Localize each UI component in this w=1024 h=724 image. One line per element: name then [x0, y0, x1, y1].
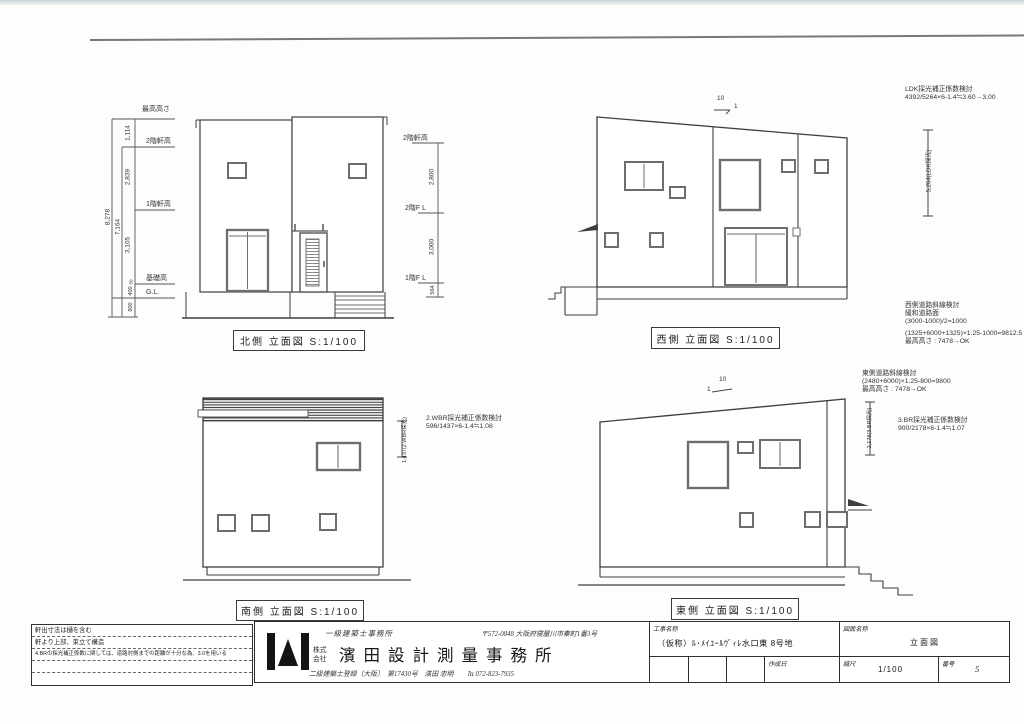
west-road-line5: 最高高さ : 7478→OK — [905, 338, 1022, 346]
north-level-max: 最高高さ — [142, 106, 170, 114]
west-canopy — [577, 224, 598, 232]
west-road-setback-note: 西側道路斜線検討 緩和道路面 (3000-1000)/2=1000 — [905, 302, 967, 327]
wbr-check-line2: 596/1437×6-1.4≒1.08 — [426, 423, 502, 431]
logo-right-bar — [301, 633, 309, 670]
west-road-line1: 西側道路斜線検討 — [905, 302, 967, 310]
west-slope-mark-line — [714, 110, 730, 114]
wbr-check-line1: 2.WBR採光補正係数検討 — [426, 415, 502, 423]
br-dimension-text: 2,178(3.BR採光) — [865, 408, 873, 449]
project-name-label: 工事名称 — [653, 624, 678, 633]
west-level-fl1: 1階F L — [405, 275, 426, 283]
east-canopy — [848, 499, 869, 506]
east-elevation-title: 東側 立面図 S:1/100 — [671, 598, 799, 620]
west-dim-564: 564 — [430, 285, 436, 294]
south-wall — [203, 398, 383, 567]
number-cell: 番号 5 — [939, 657, 1010, 682]
west-level-eave2: 2階軒高 — [403, 135, 428, 143]
scale-cell: 縮尺 1/100 — [840, 657, 939, 682]
registration-line: 二級建築士登録（大阪） 第17430号 濱田 忠明 ℡ 072-823-7935 — [309, 668, 514, 678]
north-dim-400: 400 — [128, 286, 134, 295]
project-panel: 工事名称 （仮称）ﾙ･ﾒｲﾕｰﾙｳﾞｨﾚ水口東 8号地 図面名称 立面図 作成日… — [649, 622, 1010, 682]
company-name: 濱田設計測量事務所 — [339, 642, 560, 666]
corp-prefix-2: 会社 — [313, 653, 327, 663]
ldk-daylight-check-note: LDK採光補正係数検討 4392/5264×6-1.4≒3.60→3.00 — [905, 86, 996, 102]
east-slope-mark-line — [712, 389, 732, 392]
east-slope-rise: 10 — [719, 376, 726, 384]
east-road-line3: 最高高さ : 7478→OK — [862, 386, 951, 394]
west-level-fl2: 2階F L — [405, 205, 426, 213]
ldk-check-line2: 4392/5264×6-1.4≒3.60→3.00 — [905, 94, 996, 102]
note-line-1: 軒出寸法は樋を含む — [32, 625, 252, 637]
wbr-daylight-check-note: 2.WBR採光補正係数検討 596/1437×6-1.4≒1.08 — [426, 415, 502, 431]
company-logo — [267, 633, 309, 670]
north-dim-8278: 8,278 — [105, 209, 112, 225]
logo-left-bar — [267, 633, 275, 670]
br-check-line2: 900/2178×6-1.4≒1.07 — [898, 425, 968, 433]
project-row-1: 工事名称 （仮称）ﾙ･ﾒｲﾕｰﾙｳﾞｨﾚ水口東 8号地 図面名称 立面図 — [650, 622, 1010, 657]
ldk-dimension-text: 5,264(LDK採光) — [924, 150, 933, 193]
company-panel: 株式 会社 一級建築士事務所 〒572-0848 大阪府寝屋川市秦町1番3号 濱… — [255, 622, 649, 682]
south-roof-bands — [198, 399, 383, 421]
north-dim-800: 800 — [128, 302, 134, 311]
empty-cell-2 — [689, 657, 727, 682]
west-road-line4: (1325+6000+1325)×1.25-1000=9812.5 — [905, 330, 1022, 338]
west-road-line2: 緩和道路面 — [905, 310, 967, 318]
south-elevation-title: 南側 立面図 S:1/100 — [236, 600, 364, 621]
west-foundation — [548, 287, 847, 315]
north-level-foundation: 基礎高 — [146, 275, 167, 283]
sheet-border-top — [90, 34, 1024, 40]
south-elevation-drawing — [183, 388, 433, 603]
east-road-line1: 東側道路斜線検討 — [862, 370, 951, 378]
east-slope-run: 1 — [707, 386, 711, 394]
east-road-setback-note: 東側道路斜線検討 (2480+6000)×1.25-800=9800 最高高さ … — [862, 370, 951, 395]
note-line-3: 4.BRの採光補正係数に関しては、道路対側までの距離が十分な為、3.0を用いる — [32, 649, 252, 661]
west-dim-2800: 2,800 — [429, 169, 436, 185]
north-dim-1114: 1,114 — [125, 125, 132, 141]
drawing-name-cell: 図面名称 立面図 — [840, 622, 1010, 656]
project-row-2: 作成日 縮尺 1/100 番号 5 — [650, 657, 1010, 682]
scale-label: 縮尺 — [843, 659, 855, 668]
empty-cell-1 — [650, 657, 689, 682]
number-label: 番号 — [942, 659, 954, 668]
west-elevation-drawing — [528, 88, 863, 333]
north-dim-7164: 7,164 — [115, 219, 122, 235]
north-elevation-title: 北側 立面図 S:1/100 — [233, 330, 365, 351]
north-base-and-stairs — [182, 292, 394, 318]
north-dim-50: 50 — [129, 279, 134, 284]
empty-cell-3 — [727, 657, 765, 682]
east-foundation — [578, 567, 845, 585]
note-line-2: 軒より上部、束立て構造 — [32, 637, 252, 649]
north-level-eave2: 2階軒高 — [146, 138, 171, 146]
west-slope-rise: 10 — [717, 95, 724, 103]
drawing-name-label: 図面名称 — [843, 624, 868, 633]
wbr-dimension-text: 1,437(2.WBR採光) — [400, 417, 408, 463]
west-dim-3000: 3,000 — [429, 239, 436, 255]
east-stairs — [845, 567, 913, 595]
date-cell: 作成日 — [765, 657, 840, 682]
date-label: 作成日 — [768, 659, 787, 668]
general-notes-box: 軒出寸法は樋を含む 軒より上部、束立て構造 4.BRの採光補正係数に関しては、道… — [31, 624, 253, 686]
north-dim-2839: 2,839 — [125, 169, 132, 185]
scale-value: 1/100 — [878, 665, 903, 674]
project-name-cell: 工事名称 （仮称）ﾙ･ﾒｲﾕｰﾙｳﾞｨﾚ水口東 8号地 — [650, 622, 840, 656]
note-line-5 — [32, 673, 252, 684]
north-dim-3105: 3,105 — [125, 237, 132, 253]
title-block: 株式 会社 一級建築士事務所 〒572-0848 大阪府寝屋川市秦町1番3号 濱… — [254, 621, 1010, 683]
scan-edge-band — [0, 0, 1024, 5]
logo-triangle — [278, 639, 298, 666]
ldk-check-line1: LDK採光補正係数検討 — [905, 86, 996, 94]
br-check-line1: 3.BR採光補正係数検討 — [898, 417, 968, 425]
note-line-4 — [32, 661, 252, 673]
west-road-setback-calc: (1325+6000+1325)×1.25-1000=9812.5 最高高さ :… — [905, 330, 1022, 346]
west-road-line3: (3000-1000)/2=1000 — [905, 318, 967, 326]
drawing-name-value: 立面図 — [840, 637, 1010, 648]
project-name-value: （仮称）ﾙ･ﾒｲﾕｰﾙｳﾞｨﾚ水口東 8号地 — [657, 637, 793, 649]
br-daylight-check-note: 3.BR採光補正係数検討 900/2178×6-1.4≒1.07 — [898, 417, 968, 433]
north-level-eave1: 1階軒高 — [146, 201, 171, 209]
number-value: 5 — [975, 664, 979, 674]
west-slope-run: 1 — [734, 103, 738, 111]
west-elevation-title: 西側 立面図 S:1/100 — [651, 327, 780, 349]
office-address: 〒572-0848 大阪府寝屋川市秦町1番3号 — [481, 628, 597, 638]
south-foundation — [183, 567, 411, 580]
north-level-gl: G.L. — [146, 289, 159, 297]
office-class: 一級建築士事務所 — [325, 628, 393, 639]
